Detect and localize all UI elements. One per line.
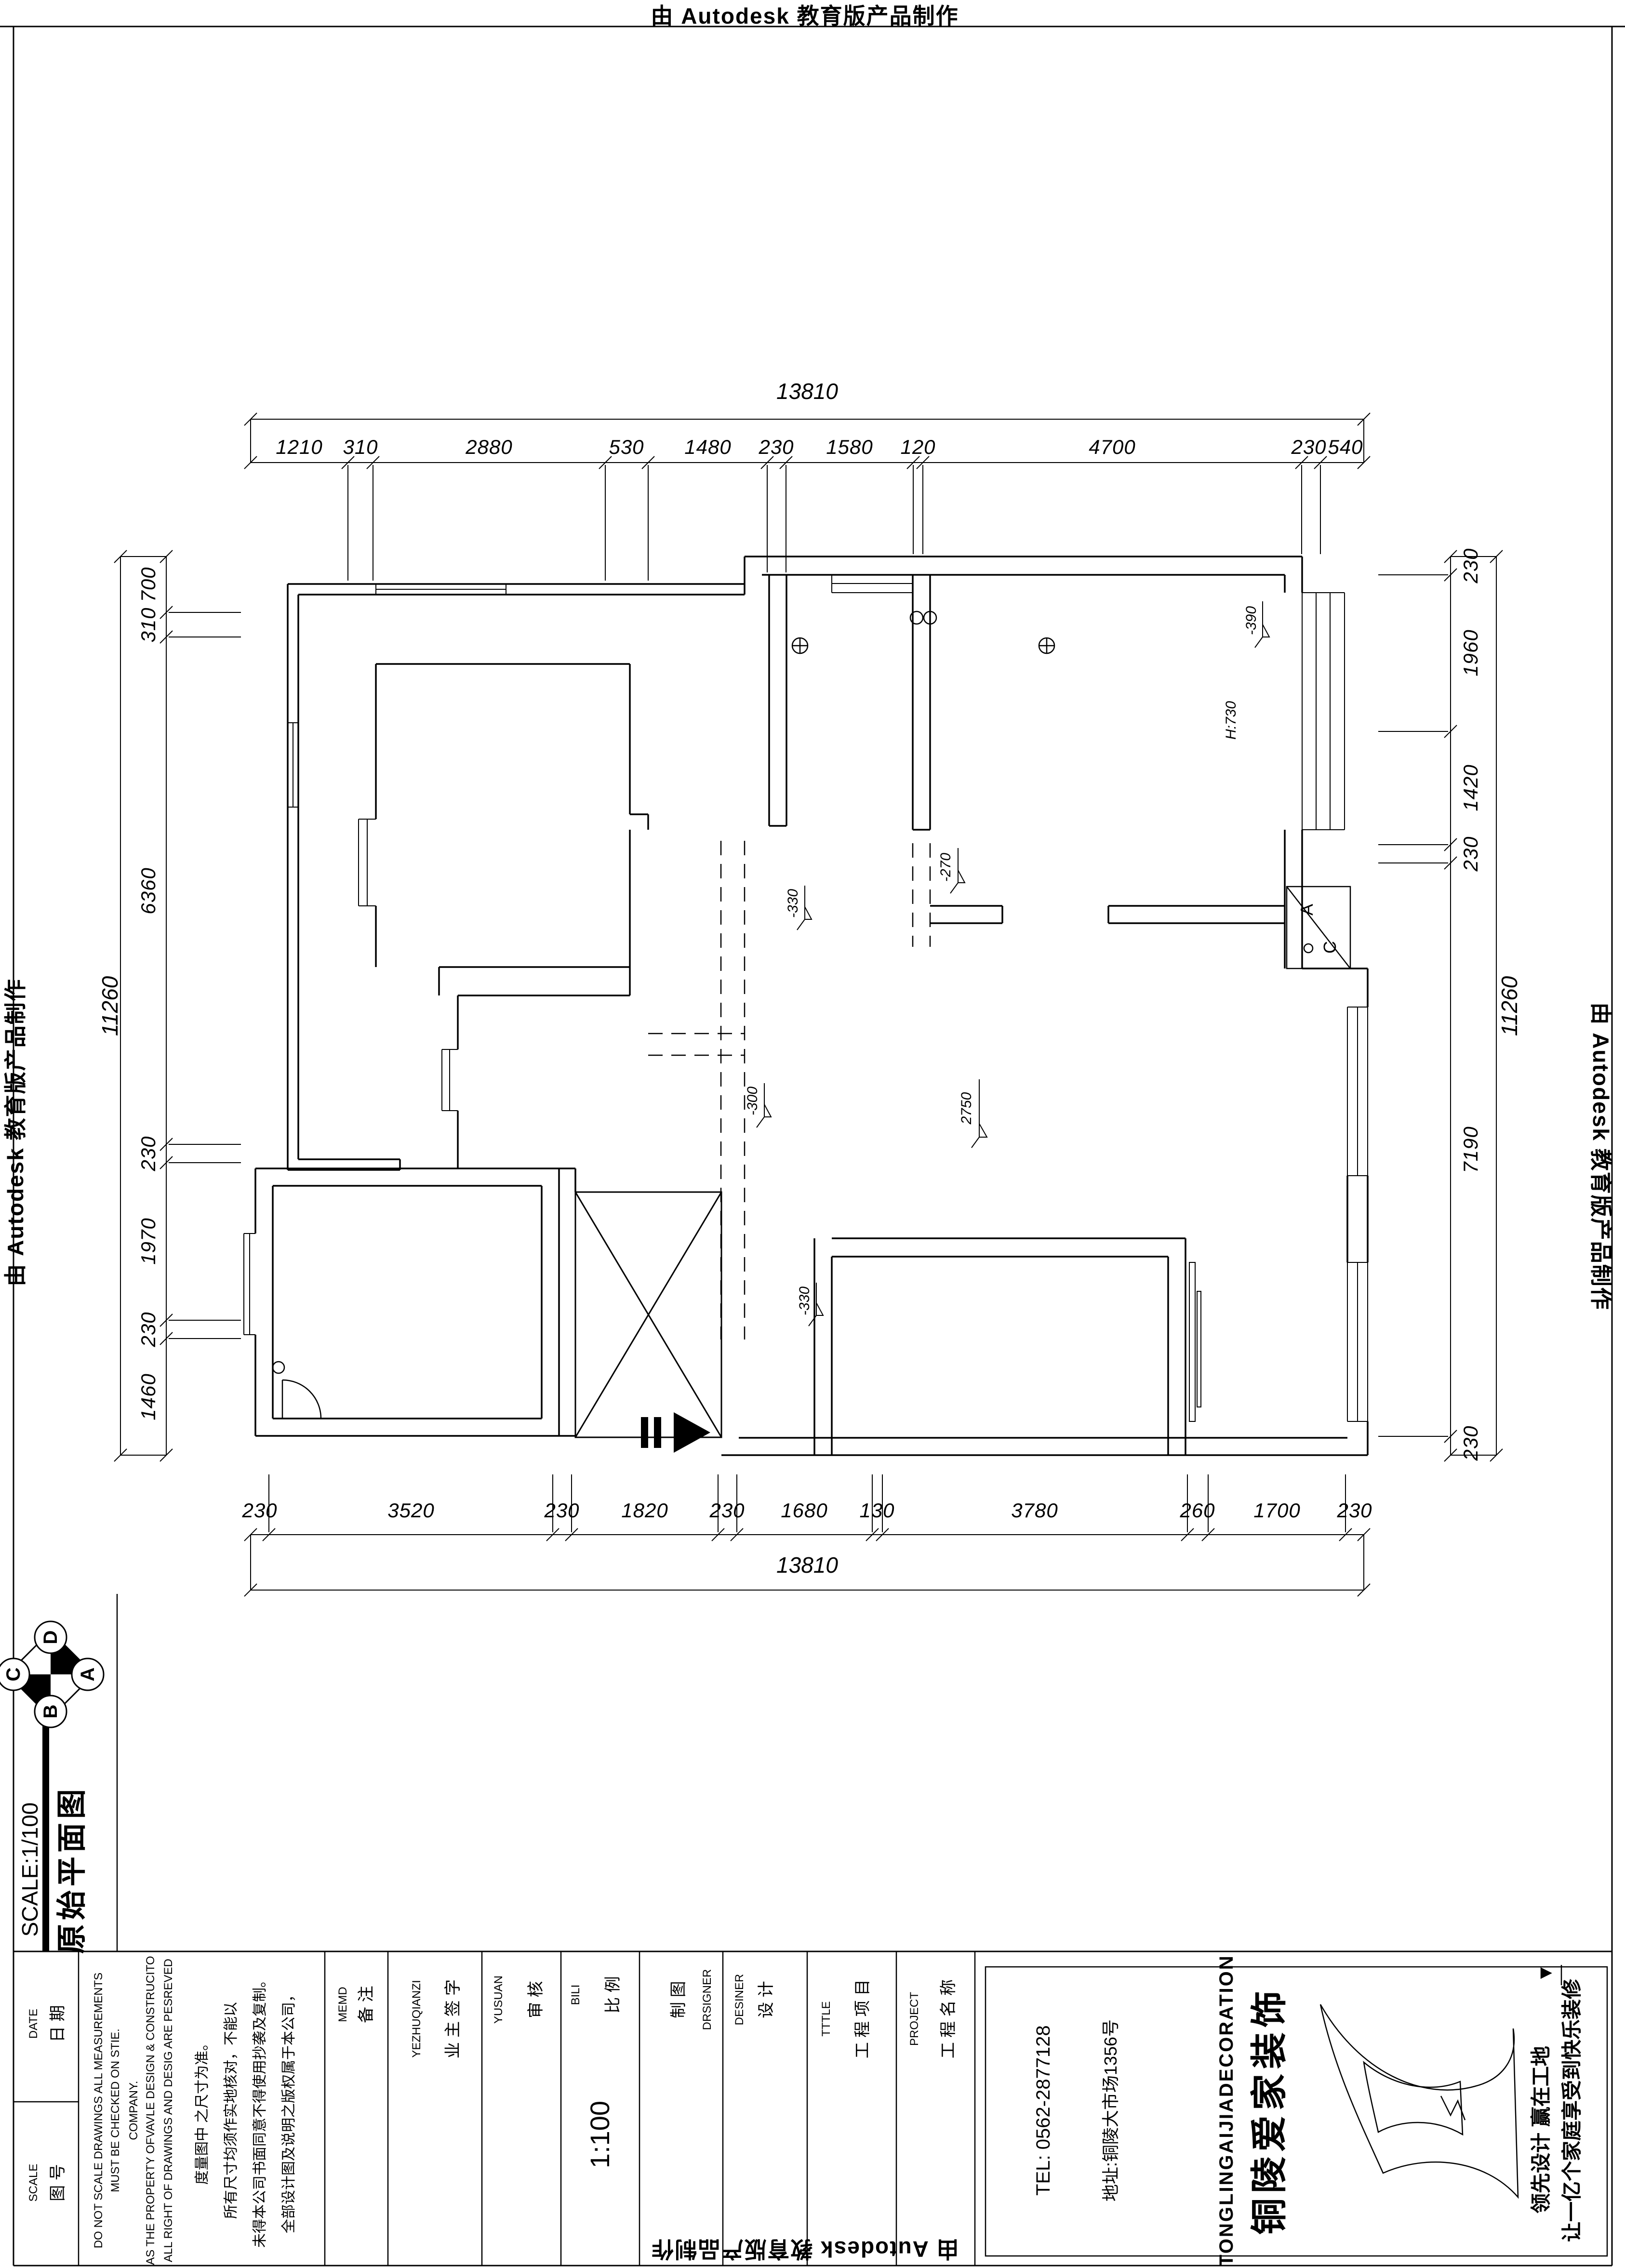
level-flags xyxy=(757,601,1269,1326)
field-date-en: DATE xyxy=(28,2009,40,2039)
disclaimer-cn-2: 所有尺寸均须作实地核对，不能以 xyxy=(224,2002,239,2219)
compass-shaft xyxy=(42,1717,49,1951)
dim-left-overall: 11260 xyxy=(99,976,121,1036)
compass-w: C xyxy=(4,1668,23,1682)
dim-top-9: 230 xyxy=(1291,437,1326,457)
level-300: -300 xyxy=(746,1087,760,1115)
dim-top-1: 310 xyxy=(343,437,378,457)
dim-right-1: 1960 xyxy=(1461,629,1481,676)
compass-s: B xyxy=(41,1705,60,1719)
elevator-shaft xyxy=(575,1192,721,1437)
dim-right-overall: 11260 xyxy=(1498,976,1520,1036)
dim-right-4: 7190 xyxy=(1461,1126,1481,1173)
company-name-cn: 铜陵爱家装饰 xyxy=(1252,1986,1288,2235)
sheet-border xyxy=(0,27,1625,2266)
drawing-scale: SCALE:1/100 xyxy=(19,1803,41,1937)
field-draft-cn: 制 图 xyxy=(670,1981,687,2018)
ac-letter-a: A xyxy=(1298,904,1316,915)
entry-arrow-icon xyxy=(641,1412,710,1453)
company-name-en: TONGLINGAIJIADECORATION xyxy=(1217,1954,1236,2267)
field-item-cn: 工 程 项 目 xyxy=(854,1979,871,2058)
ratio-value: 1:100 xyxy=(586,2101,613,2168)
dim-top-4: 1480 xyxy=(684,437,731,457)
disclaimer-cn-0: 全部设计图及说明之版权属于本公司， xyxy=(282,1988,296,2233)
dim-bottom-overall: 13810 xyxy=(776,1554,838,1576)
disclaimer-en-3: DO NOT SCALE DRAWINGS ALL MEASUREMENTS xyxy=(93,1973,105,2249)
level-330b: -330 xyxy=(798,1287,812,1315)
dim-left-1: 310 xyxy=(138,607,159,642)
dim-left-0: 700 xyxy=(138,567,159,602)
compass-e: A xyxy=(78,1668,97,1682)
dim-bot-4: 230 xyxy=(709,1500,745,1521)
level-330a: -330 xyxy=(786,889,800,918)
dim-left-5: 230 xyxy=(138,1312,159,1347)
level-390: -390 xyxy=(1244,606,1259,635)
field-date-cn: 日 期 xyxy=(50,2005,66,2042)
ac-closet xyxy=(1287,887,1350,968)
dim-top-5: 230 xyxy=(759,437,794,457)
dim-top-8: 4700 xyxy=(1089,437,1135,457)
level-2750: 2750 xyxy=(959,1092,974,1125)
field-owner-cn: 业 主 签 字 xyxy=(445,1979,461,2058)
dim-bot-2: 230 xyxy=(544,1500,579,1521)
dim-left-2: 6360 xyxy=(138,867,159,914)
dim-top-2: 2880 xyxy=(466,437,512,457)
autodesk-credit-right: 由 Autodesk 教育版产品制作 xyxy=(1590,1002,1612,1310)
dim-top-10: 540 xyxy=(1328,437,1363,457)
disclaimer-en-2: COMPANY. xyxy=(128,2081,140,2140)
dim-top-3: 530 xyxy=(609,437,644,457)
disclaimer-cn-1: 未得本公司书面同意不得使用抄袭及复制。 xyxy=(253,1973,267,2248)
field-design-en: DESINER xyxy=(734,1974,746,2026)
dim-bot-0: 230 xyxy=(242,1500,277,1521)
company-tel: TEL: 0562-2877128 xyxy=(1034,2025,1053,2196)
drawing-title: 原始平面图 xyxy=(57,1785,87,1954)
field-memo-en: MEMD xyxy=(337,1987,349,2022)
disclaimer-en-1: AS THE PROPERTY OFVAVLE DESIGN & CONSTRU… xyxy=(145,1956,157,2265)
dim-right-5: 230 xyxy=(1461,1425,1481,1460)
field-audit-en: YUSUAN xyxy=(493,1976,505,2024)
field-draft-en: DRSIGNER xyxy=(702,1969,713,2030)
field-ratio-en: BILI xyxy=(570,1985,582,2005)
dim-bot-5: 1680 xyxy=(781,1500,827,1521)
field-memo-cn: 备 注 xyxy=(358,1986,374,2023)
dim-top-overall: 13810 xyxy=(776,380,838,402)
dim-bot-3: 1820 xyxy=(621,1500,668,1521)
field-design-cn: 设 计 xyxy=(758,1981,774,2018)
dim-right-3: 230 xyxy=(1461,836,1481,871)
field-audit-cn: 审 核 xyxy=(528,1981,544,2018)
drawing-sheet: 由 Autodesk 教育版产品制作 由 Autodesk 教育版产品制作 由 … xyxy=(0,0,1625,2268)
company-logo-icon xyxy=(1320,1965,1561,2197)
disclaimer-cn-3: 度量图中 之尺寸为准。 xyxy=(195,2036,210,2185)
company-slogan-2: 领先设计 赢在工地 xyxy=(1531,2046,1551,2214)
dim-left-6: 1460 xyxy=(138,1373,159,1420)
field-sheet-en: SCALE xyxy=(28,2164,40,2202)
dim-right-0: 230 xyxy=(1461,548,1481,583)
level-h730: H:730 xyxy=(1224,701,1239,740)
plan-linework xyxy=(0,0,1625,2268)
company-slogan-1: 让一亿个家庭享受到快乐装修 xyxy=(1562,1979,1582,2242)
field-ratio-cn: 比 例 xyxy=(605,1976,621,2013)
dim-bot-9: 1700 xyxy=(1253,1500,1300,1521)
dim-right-2: 1420 xyxy=(1461,764,1481,811)
dim-bot-10: 230 xyxy=(1337,1500,1372,1521)
disclaimer-en-4: MUST BE CHECKED ON STIE. xyxy=(110,2029,121,2192)
dim-bot-7: 3780 xyxy=(1011,1500,1058,1521)
dim-top-7: 120 xyxy=(900,437,935,457)
dim-bot-1: 3520 xyxy=(387,1500,434,1521)
dim-bot-8: 260 xyxy=(1180,1500,1215,1521)
dim-top-0: 1210 xyxy=(276,437,322,457)
level-270: -270 xyxy=(939,853,953,882)
field-project-cn: 工 程 名 称 xyxy=(940,1979,957,2058)
autodesk-credit-top: 由 Autodesk 教育版产品制作 xyxy=(651,5,959,27)
company-address: 地址:铜陵大市场1356号 xyxy=(1102,2019,1119,2202)
field-owner-en: YEZHUQIANZI xyxy=(411,1980,423,2057)
field-project-en: PROJECT xyxy=(909,1992,920,2046)
dim-top-6: 1580 xyxy=(826,437,873,457)
field-item-en: TTTLE xyxy=(821,2001,832,2036)
ac-letter-c: C xyxy=(1321,941,1339,954)
dim-left-3: 230 xyxy=(138,1136,159,1171)
compass-n: D xyxy=(41,1631,60,1645)
fixture-symbols xyxy=(273,611,1054,1419)
field-sheet-cn: 图 号 xyxy=(50,2164,66,2201)
disclaimer-en-0: ALL RIGHT OF DRAWINGS AND DESIG ARE PESR… xyxy=(163,1959,174,2262)
dim-left-4: 1970 xyxy=(138,1218,159,1264)
autodesk-credit-bottom: 由 Autodesk 教育版产品制作 xyxy=(651,2238,959,2260)
autodesk-credit-left: 由 Autodesk 教育版产品制作 xyxy=(4,978,27,1286)
dim-bot-6: 130 xyxy=(859,1500,894,1521)
